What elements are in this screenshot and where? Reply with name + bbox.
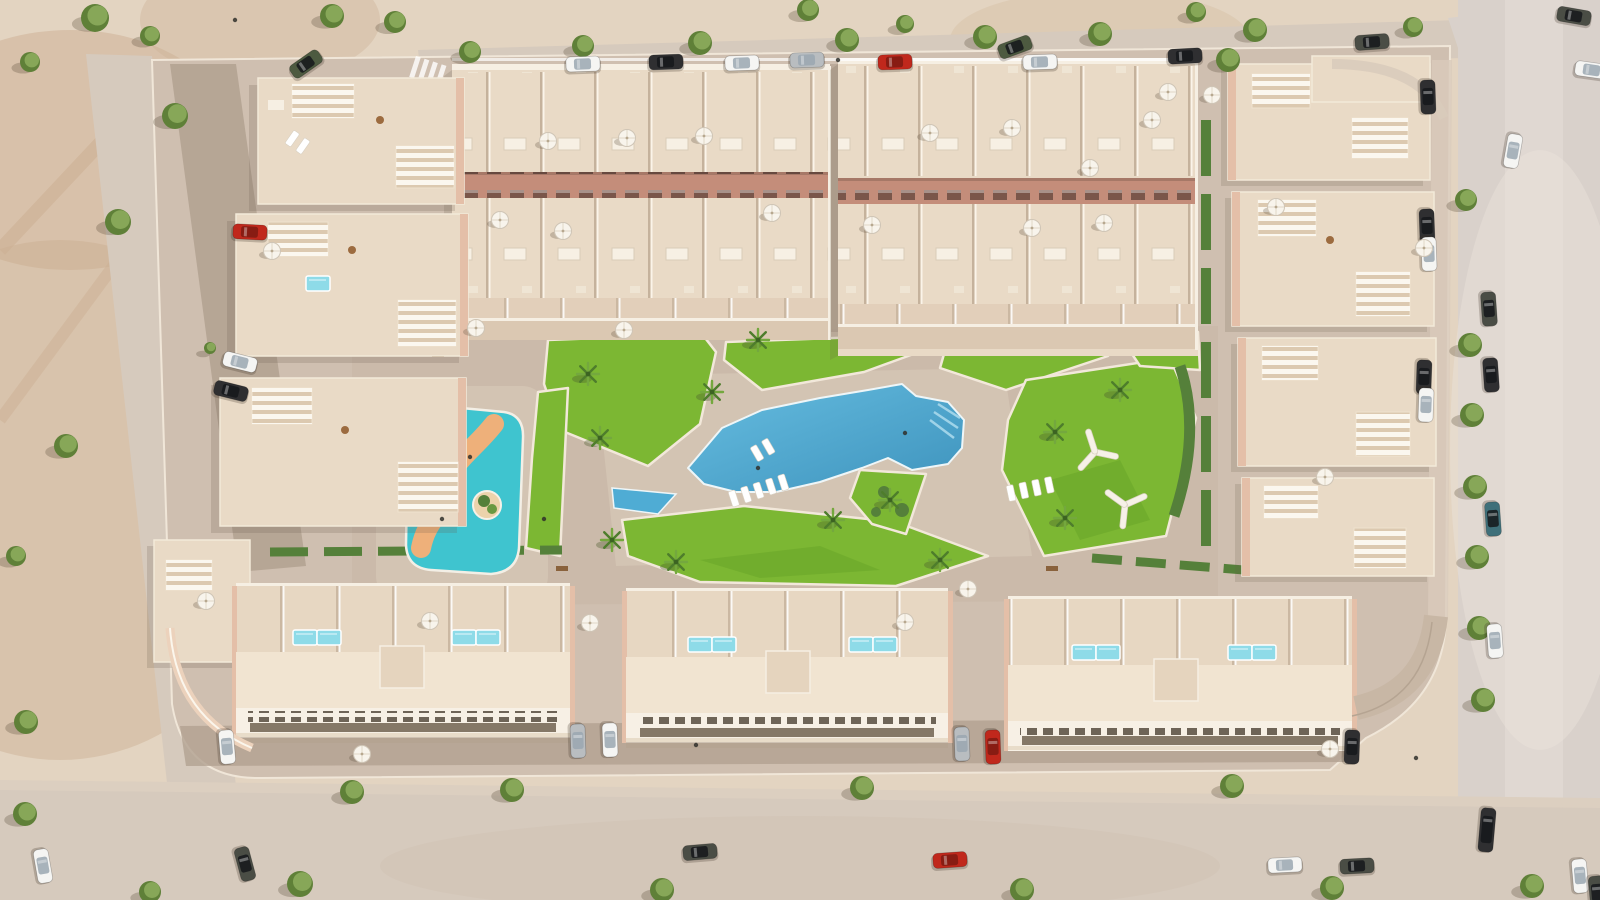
car-cabin xyxy=(1487,510,1499,528)
car-dark xyxy=(1338,858,1376,877)
car-black xyxy=(1480,356,1500,394)
parapet xyxy=(838,324,1198,327)
windshield xyxy=(889,58,892,67)
villa-block xyxy=(1225,192,1434,332)
facade-shadow xyxy=(838,178,1198,181)
car-cabin xyxy=(1574,867,1586,885)
person xyxy=(233,18,237,22)
car-cabin xyxy=(1348,860,1366,872)
car-black xyxy=(1166,48,1204,67)
end-wall xyxy=(1195,60,1198,350)
car-cabin xyxy=(241,226,259,238)
bench xyxy=(556,566,568,571)
windshield xyxy=(957,738,966,741)
plunge-pool xyxy=(317,630,341,645)
car-cabin xyxy=(1422,88,1434,105)
car-cabin xyxy=(733,57,750,69)
windshield xyxy=(1486,369,1495,373)
windshield xyxy=(988,741,997,744)
windshield xyxy=(577,60,580,69)
windshield xyxy=(1279,861,1282,870)
roof-table xyxy=(348,246,356,254)
window-row xyxy=(248,711,558,722)
car-white xyxy=(723,55,761,74)
windshield xyxy=(1034,58,1037,67)
car-silver xyxy=(951,725,970,763)
residential-complex-aerial-render xyxy=(0,0,1600,900)
roof-terrace-row xyxy=(452,72,830,172)
plunge-pool xyxy=(1252,645,1276,660)
car-teal xyxy=(1482,500,1502,538)
stair-core xyxy=(766,651,810,693)
car-white xyxy=(1415,386,1434,424)
plunge-pool xyxy=(1096,645,1120,660)
roof-table xyxy=(376,116,384,124)
windshield xyxy=(244,227,247,236)
car-white xyxy=(564,56,602,75)
south-apartment-rows xyxy=(232,583,1357,751)
car-white xyxy=(1484,622,1504,660)
car-cabin xyxy=(572,732,584,749)
person xyxy=(694,743,698,747)
windshield xyxy=(1420,371,1429,374)
car-red xyxy=(231,224,269,243)
car-cabin xyxy=(1031,56,1048,68)
island-shrub xyxy=(487,504,497,514)
car-cabin xyxy=(1421,217,1433,234)
car-cabin xyxy=(574,58,591,70)
windshield xyxy=(1179,52,1182,61)
terrace-dividers xyxy=(452,298,830,320)
balcony-shadow xyxy=(1022,736,1338,745)
car-cabin xyxy=(1420,396,1432,413)
person xyxy=(542,517,546,521)
car-black xyxy=(1341,728,1360,766)
car-black xyxy=(1417,78,1436,116)
car-white xyxy=(1266,857,1304,876)
plunge-pool xyxy=(873,637,897,652)
car-white xyxy=(1021,54,1059,73)
apartment-building xyxy=(232,583,575,743)
car-cabin xyxy=(221,738,233,756)
windshield xyxy=(1484,303,1493,307)
east-villas xyxy=(1221,56,1436,582)
building-shadow xyxy=(830,64,838,360)
plunge-pool xyxy=(712,637,736,652)
parapet xyxy=(452,318,830,321)
person xyxy=(1414,756,1418,760)
plunge-pool xyxy=(476,630,500,645)
car-cabin xyxy=(1489,632,1501,650)
windshield xyxy=(1423,91,1432,94)
car-dark xyxy=(680,843,718,864)
person xyxy=(903,431,907,435)
car-dark xyxy=(1353,33,1391,53)
car-cabin xyxy=(1591,884,1600,900)
apartment-building xyxy=(622,588,953,748)
car-cabin xyxy=(1346,738,1358,755)
windshield xyxy=(1422,399,1431,402)
car-dark xyxy=(1478,290,1498,328)
car-black xyxy=(647,54,685,73)
car-cabin xyxy=(1176,50,1194,62)
windshield xyxy=(1366,38,1370,47)
villa-block xyxy=(1231,338,1436,472)
person xyxy=(836,58,840,62)
windshield xyxy=(660,58,663,67)
villa-block xyxy=(249,78,464,211)
facade-shadow xyxy=(452,172,830,175)
car-cabin xyxy=(1418,368,1430,385)
island-shrub xyxy=(478,495,490,507)
window-row xyxy=(638,716,936,727)
parapet xyxy=(452,64,830,70)
windshield xyxy=(736,59,739,68)
car-cabin xyxy=(1276,859,1294,871)
car-cabin xyxy=(1483,300,1495,318)
front-yards xyxy=(452,321,830,340)
windshield xyxy=(1490,635,1499,639)
apartment-building xyxy=(1004,596,1357,751)
windshield xyxy=(605,734,614,737)
townhouse-cluster-b xyxy=(830,58,1198,360)
balcony-shadow xyxy=(640,728,934,737)
car-red xyxy=(876,54,914,73)
front-yards xyxy=(838,327,1198,349)
villa-block xyxy=(211,378,466,533)
car-red xyxy=(982,728,1001,766)
car-cabin xyxy=(1363,36,1381,48)
car-white xyxy=(599,721,618,759)
windshield xyxy=(1351,862,1354,871)
car-red xyxy=(931,851,969,871)
windshield xyxy=(1488,513,1497,517)
person xyxy=(440,517,444,521)
car-cabin xyxy=(657,56,674,68)
terrace-dividers xyxy=(838,304,1198,326)
windshield xyxy=(1348,741,1357,744)
windshield xyxy=(944,856,948,865)
person xyxy=(756,466,760,470)
windshield xyxy=(573,735,582,738)
car-silver xyxy=(567,722,586,760)
aerial-render-stage xyxy=(0,0,1600,900)
balcony-shadow xyxy=(250,723,556,732)
bench xyxy=(1046,566,1058,571)
car-white xyxy=(215,727,236,765)
person xyxy=(468,455,472,459)
car-cabin xyxy=(987,738,999,755)
villa-block xyxy=(1235,478,1434,582)
car-silver xyxy=(788,52,826,71)
island-shrub xyxy=(895,503,909,517)
roof-table xyxy=(341,426,349,434)
car-dark xyxy=(1585,873,1600,900)
roof-table xyxy=(1326,236,1334,244)
plunge-pool xyxy=(306,276,330,291)
facade-windows xyxy=(452,172,830,198)
car-cabin xyxy=(604,731,616,748)
car-cabin xyxy=(941,854,959,866)
stair-core xyxy=(1154,659,1198,701)
plunge-pool xyxy=(849,637,873,652)
car-cabin xyxy=(1485,366,1497,384)
roof-terrace-row xyxy=(838,204,1198,304)
car-white xyxy=(1568,856,1589,894)
plunge-pool xyxy=(1072,645,1096,660)
stair-core xyxy=(380,646,424,688)
plunge-pool xyxy=(1228,645,1252,660)
plunge-pool xyxy=(452,630,476,645)
island-shrub xyxy=(878,486,890,498)
windshield xyxy=(801,56,804,65)
windshield xyxy=(1422,220,1431,223)
window-row xyxy=(1020,724,1340,735)
plunge-pool xyxy=(293,630,317,645)
car-cabin xyxy=(691,846,709,858)
facade-windows xyxy=(838,178,1198,204)
townhouse-cluster-a xyxy=(444,64,831,344)
car-cabin xyxy=(956,735,968,752)
car-cabin xyxy=(798,54,815,66)
plunge-pool xyxy=(688,637,712,652)
car-cabin xyxy=(886,56,903,68)
